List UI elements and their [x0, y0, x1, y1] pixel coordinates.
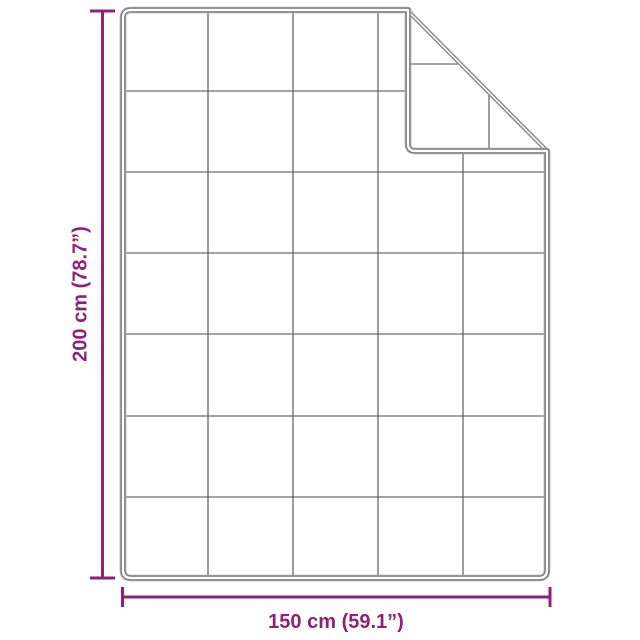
product-dimension-diagram: 200 cm (78.7”) 150 cm (59.1”)	[0, 0, 640, 640]
width-dimension-line	[123, 587, 551, 607]
height-dimension-line	[90, 11, 115, 578]
width-dimension-label: 150 cm (59.1”)	[268, 611, 404, 634]
fold-line	[409, 12, 546, 150]
height-dimension-label: 200 cm (78.7”)	[70, 226, 93, 362]
fold-flap-grid-lines	[409, 64, 489, 150]
blanket-diagram-canvas	[0, 0, 640, 640]
quilt-grid-lines	[124, 11, 546, 577]
blanket-outline	[123, 10, 547, 578]
